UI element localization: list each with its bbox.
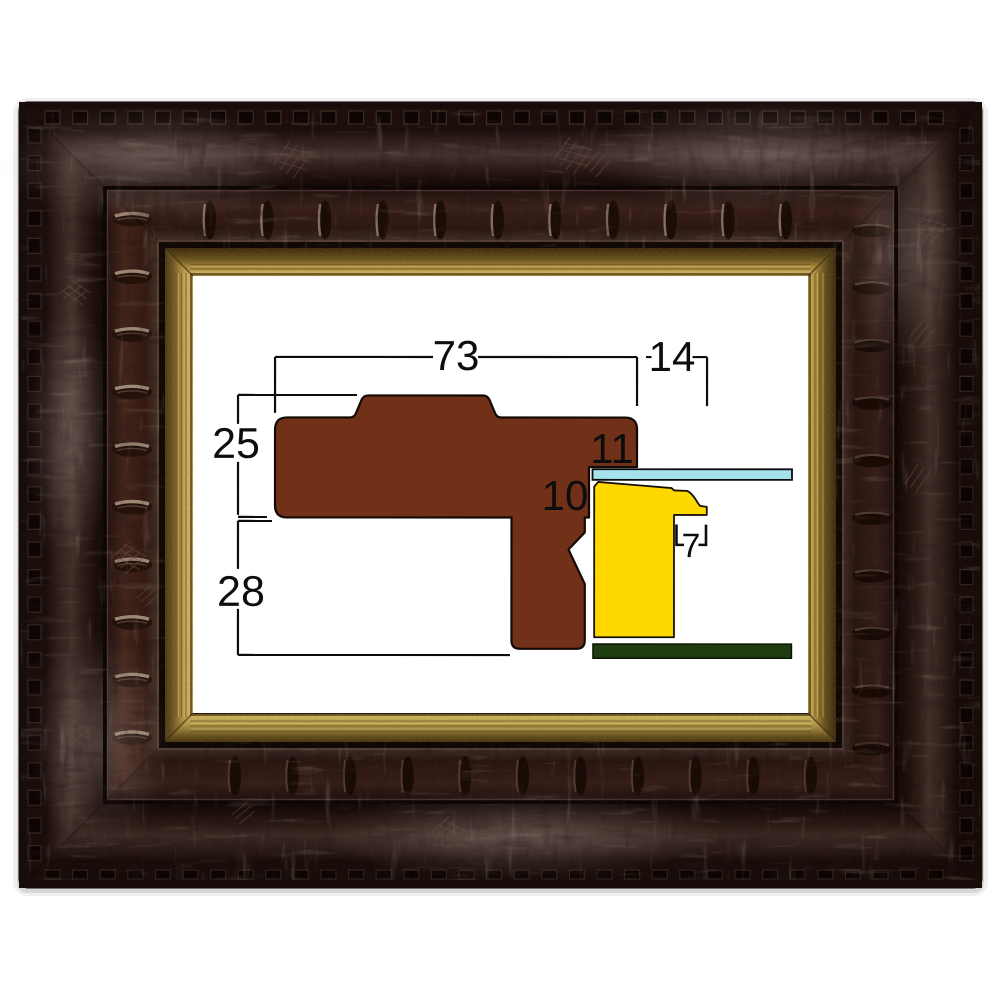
svg-text:73: 73	[433, 332, 480, 379]
svg-text:10: 10	[542, 472, 589, 519]
svg-text:28: 28	[217, 568, 265, 616]
svg-text:11: 11	[590, 425, 634, 472]
svg-text:25: 25	[212, 420, 260, 468]
svg-text:14: 14	[649, 333, 696, 380]
svg-text:7: 7	[682, 527, 701, 565]
